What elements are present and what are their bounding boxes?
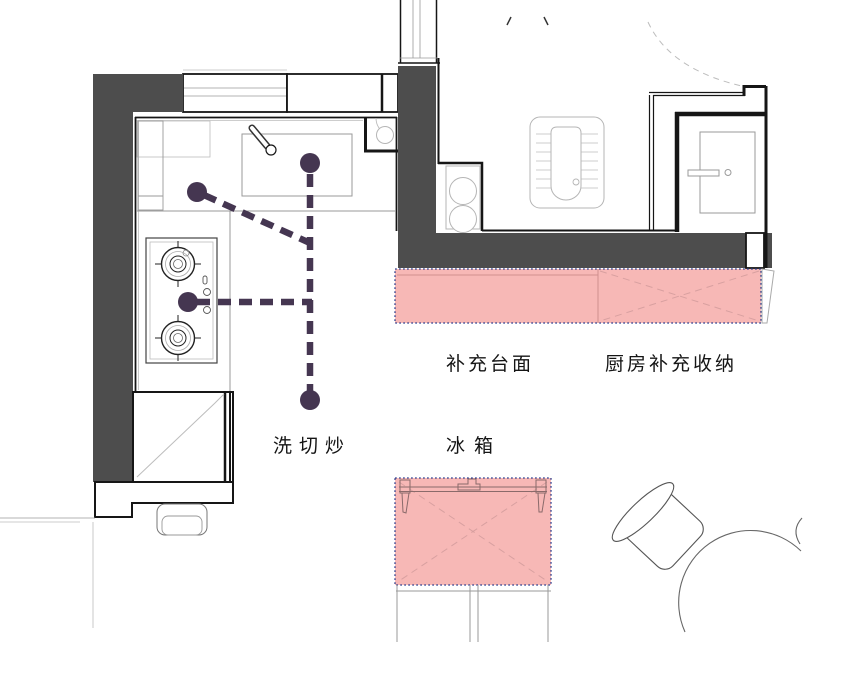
- route-dot-prep: [187, 182, 207, 202]
- kitchen-window: [183, 70, 287, 112]
- floor-plan: 洗切炒 补充台面 厨房补充收纳 冰箱: [0, 0, 856, 674]
- route-dot-stove: [178, 292, 198, 312]
- niche-fixture: [446, 166, 480, 233]
- corner-closet: [364, 117, 398, 152]
- top-door-frame: [398, 0, 440, 63]
- highlight-fridge-box: [395, 478, 551, 642]
- floor-plan-drawing: [0, 0, 856, 674]
- squat-toilet: [530, 117, 604, 208]
- wall-footing: [95, 482, 233, 535]
- kitchen-sink: [242, 128, 352, 196]
- ground-lines: [0, 518, 95, 628]
- route-dot-end: [300, 390, 320, 410]
- wash-vanity: [688, 132, 755, 213]
- label-kitchen-storage: 厨房补充收纳: [605, 349, 737, 376]
- dining-table: [679, 530, 801, 632]
- label-workflow: 洗切炒: [273, 431, 351, 458]
- pass-through-cabinet: [287, 74, 398, 112]
- highlight-counter-strip: [395, 269, 774, 323]
- second-chair-edge: [796, 518, 802, 544]
- label-counter-supplement: 补充台面: [446, 349, 534, 376]
- door-swing-arc: [507, 17, 746, 87]
- route-dot-sink: [300, 153, 320, 173]
- label-fridge: 冰箱: [446, 431, 502, 458]
- dining-set: [606, 476, 802, 632]
- door-frame-lines: [396, 585, 551, 642]
